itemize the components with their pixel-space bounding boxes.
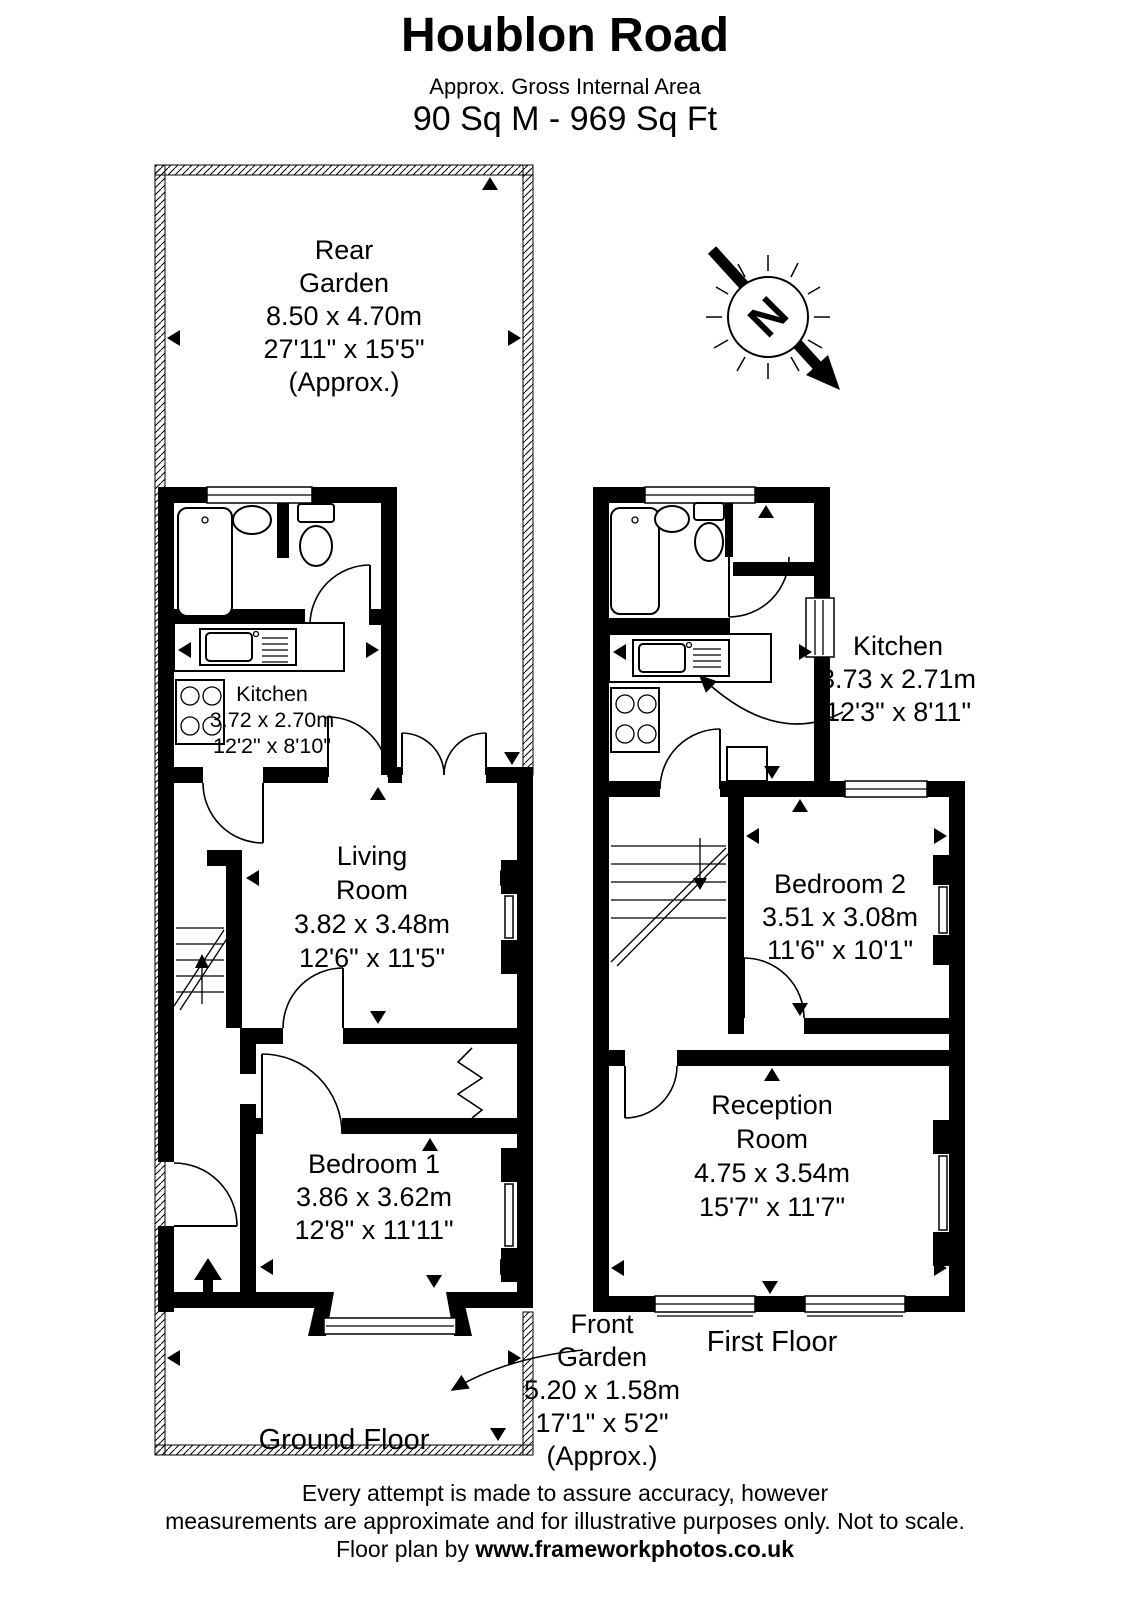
floorplan-page: N Houblon Road Approx. Gross Internal Ar…: [0, 0, 1130, 1600]
page-subtitle: Approx. Gross Internal Area: [0, 74, 1130, 100]
bedroom-1-name: Bedroom 1: [249, 1148, 499, 1181]
compass-rose: N: [706, 250, 840, 390]
living-room-name-2: Room: [247, 873, 497, 907]
first-kitchen-imperial: 12'3" x 8'11": [778, 696, 1018, 729]
bedroom-1-imperial: 12'8" x 11'11": [249, 1214, 499, 1247]
bedroom-2-metric: 3.51 x 3.08m: [715, 901, 965, 934]
living-room-name-1: Living: [247, 839, 497, 873]
credit-prefix: Floor plan by: [336, 1536, 475, 1562]
bathtub-icon: [611, 508, 659, 614]
first-kitchen-name: Kitchen: [778, 630, 1018, 663]
credit-line: Floor plan by www.frameworkphotos.co.uk: [0, 1535, 1130, 1563]
bedroom-1-label: Bedroom 1 3.86 x 3.62m 12'8" x 11'11": [249, 1148, 499, 1247]
bay-window: [308, 1292, 472, 1336]
rear-garden-approx: (Approx.): [194, 366, 494, 399]
rear-garden-imperial: 27'11" x 15'5": [194, 333, 494, 366]
ground-floor-title: Ground Floor: [214, 1424, 474, 1457]
gross-internal-area: 90 Sq M - 969 Sq Ft: [0, 100, 1130, 139]
reception-room-label: Reception Room 4.75 x 3.54m 15'7" x 11'7…: [647, 1088, 897, 1224]
rear-garden-name-2: Garden: [194, 267, 494, 300]
basin-icon: [233, 506, 271, 534]
front-garden-approx: (Approx.): [497, 1440, 707, 1473]
reception-room-name-2: Room: [647, 1122, 897, 1156]
appliance-icon: [727, 747, 767, 781]
front-garden-imperial: 17'1" x 5'2": [497, 1407, 707, 1440]
ground-stairs: [174, 928, 230, 1010]
first-fixtures: [609, 503, 771, 781]
bedroom-1-metric: 3.86 x 3.62m: [249, 1181, 499, 1214]
disclaimer: Every attempt is made to assure accuracy…: [0, 1479, 1130, 1563]
living-room-metric: 3.82 x 3.48m: [247, 907, 497, 941]
bathtub-icon: [178, 508, 232, 616]
disclaimer-line-1: Every attempt is made to assure accuracy…: [0, 1479, 1130, 1507]
rear-garden-name-1: Rear: [194, 234, 494, 267]
living-room-imperial: 12'6" x 11'5": [247, 941, 497, 975]
page-title: Houblon Road: [0, 8, 1130, 63]
reception-room-metric: 4.75 x 3.54m: [647, 1156, 897, 1190]
first-kitchen-label: Kitchen 3.73 x 2.71m 12'3" x 8'11": [778, 630, 1018, 729]
first-floor-title: First Floor: [642, 1326, 902, 1359]
reception-room-name-1: Reception: [647, 1088, 897, 1122]
front-garden-metric: 5.20 x 1.58m: [497, 1374, 707, 1407]
toilet-icon: [694, 503, 724, 520]
bedroom-2-name: Bedroom 2: [715, 868, 965, 901]
toilet-icon: [298, 504, 334, 522]
reception-room-imperial: 15'7" x 11'7": [647, 1190, 897, 1224]
ground-kitchen-name: Kitchen: [182, 681, 362, 707]
first-kitchen-metric: 3.73 x 2.71m: [778, 663, 1018, 696]
bedroom-2-imperial: 11'6" x 10'1": [715, 934, 965, 967]
disclaimer-line-2: measurements are approximate and for ill…: [0, 1507, 1130, 1535]
bedroom-2-label: Bedroom 2 3.51 x 3.08m 11'6" x 10'1": [715, 868, 965, 967]
ground-kitchen-label: Kitchen 3.72 x 2.70m 12'2" x 8'10": [182, 681, 362, 759]
ground-kitchen-metric: 3.72 x 2.70m: [182, 707, 362, 733]
ground-kitchen-imperial: 12'2" x 8'10": [182, 733, 362, 759]
first-stairs: [611, 838, 728, 966]
rear-garden-label: Rear Garden 8.50 x 4.70m 27'11" x 15'5" …: [194, 234, 494, 399]
basin-icon: [655, 506, 689, 532]
living-room-label: Living Room 3.82 x 3.48m 12'6" x 11'5": [247, 839, 497, 975]
rear-garden-metric: 8.50 x 4.70m: [194, 300, 494, 333]
credit-url: www.frameworkphotos.co.uk: [475, 1536, 794, 1562]
